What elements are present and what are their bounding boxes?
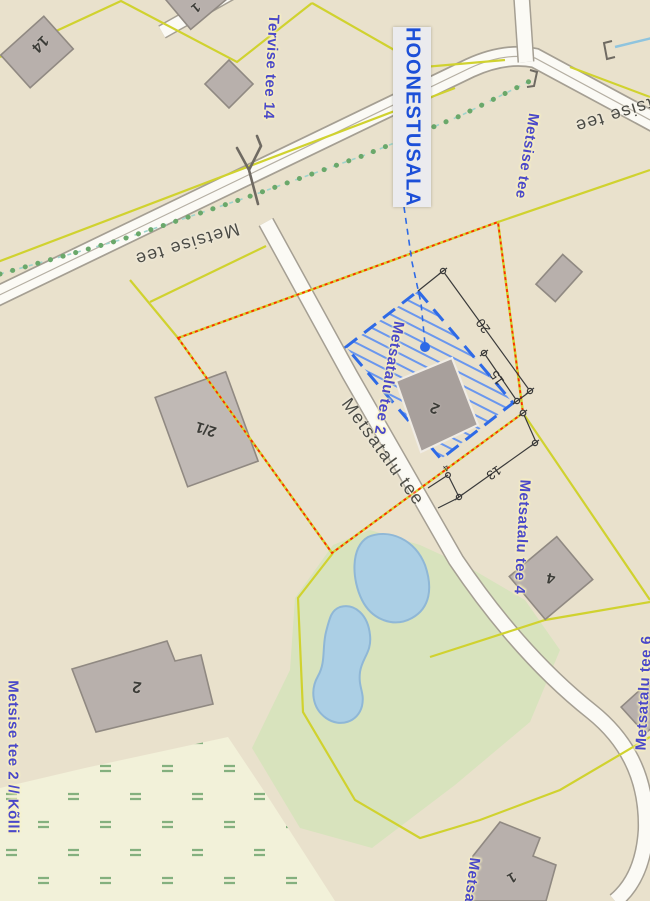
building-right-top [536, 254, 582, 301]
building-1-south [468, 822, 556, 901]
map-canvas[interactable]: HOONESTUSALA Tervise tee 14 Metsise tee … [0, 0, 650, 901]
hoonestusala-node-dot [420, 342, 430, 352]
building-right-edge [621, 680, 650, 734]
building-2-south [72, 641, 213, 732]
map-base-layer [0, 0, 650, 901]
stream-bracket-icon [604, 41, 615, 59]
building-diamond [205, 60, 253, 108]
stream-line [604, 38, 650, 59]
path-end-bracket-icon [527, 70, 537, 87]
road-stub-north [521, 0, 526, 62]
callout-leader [404, 207, 430, 352]
hoonestusala-callout: HOONESTUSALA [393, 27, 431, 207]
hoonestusala-label: HOONESTUSALA [401, 27, 424, 207]
